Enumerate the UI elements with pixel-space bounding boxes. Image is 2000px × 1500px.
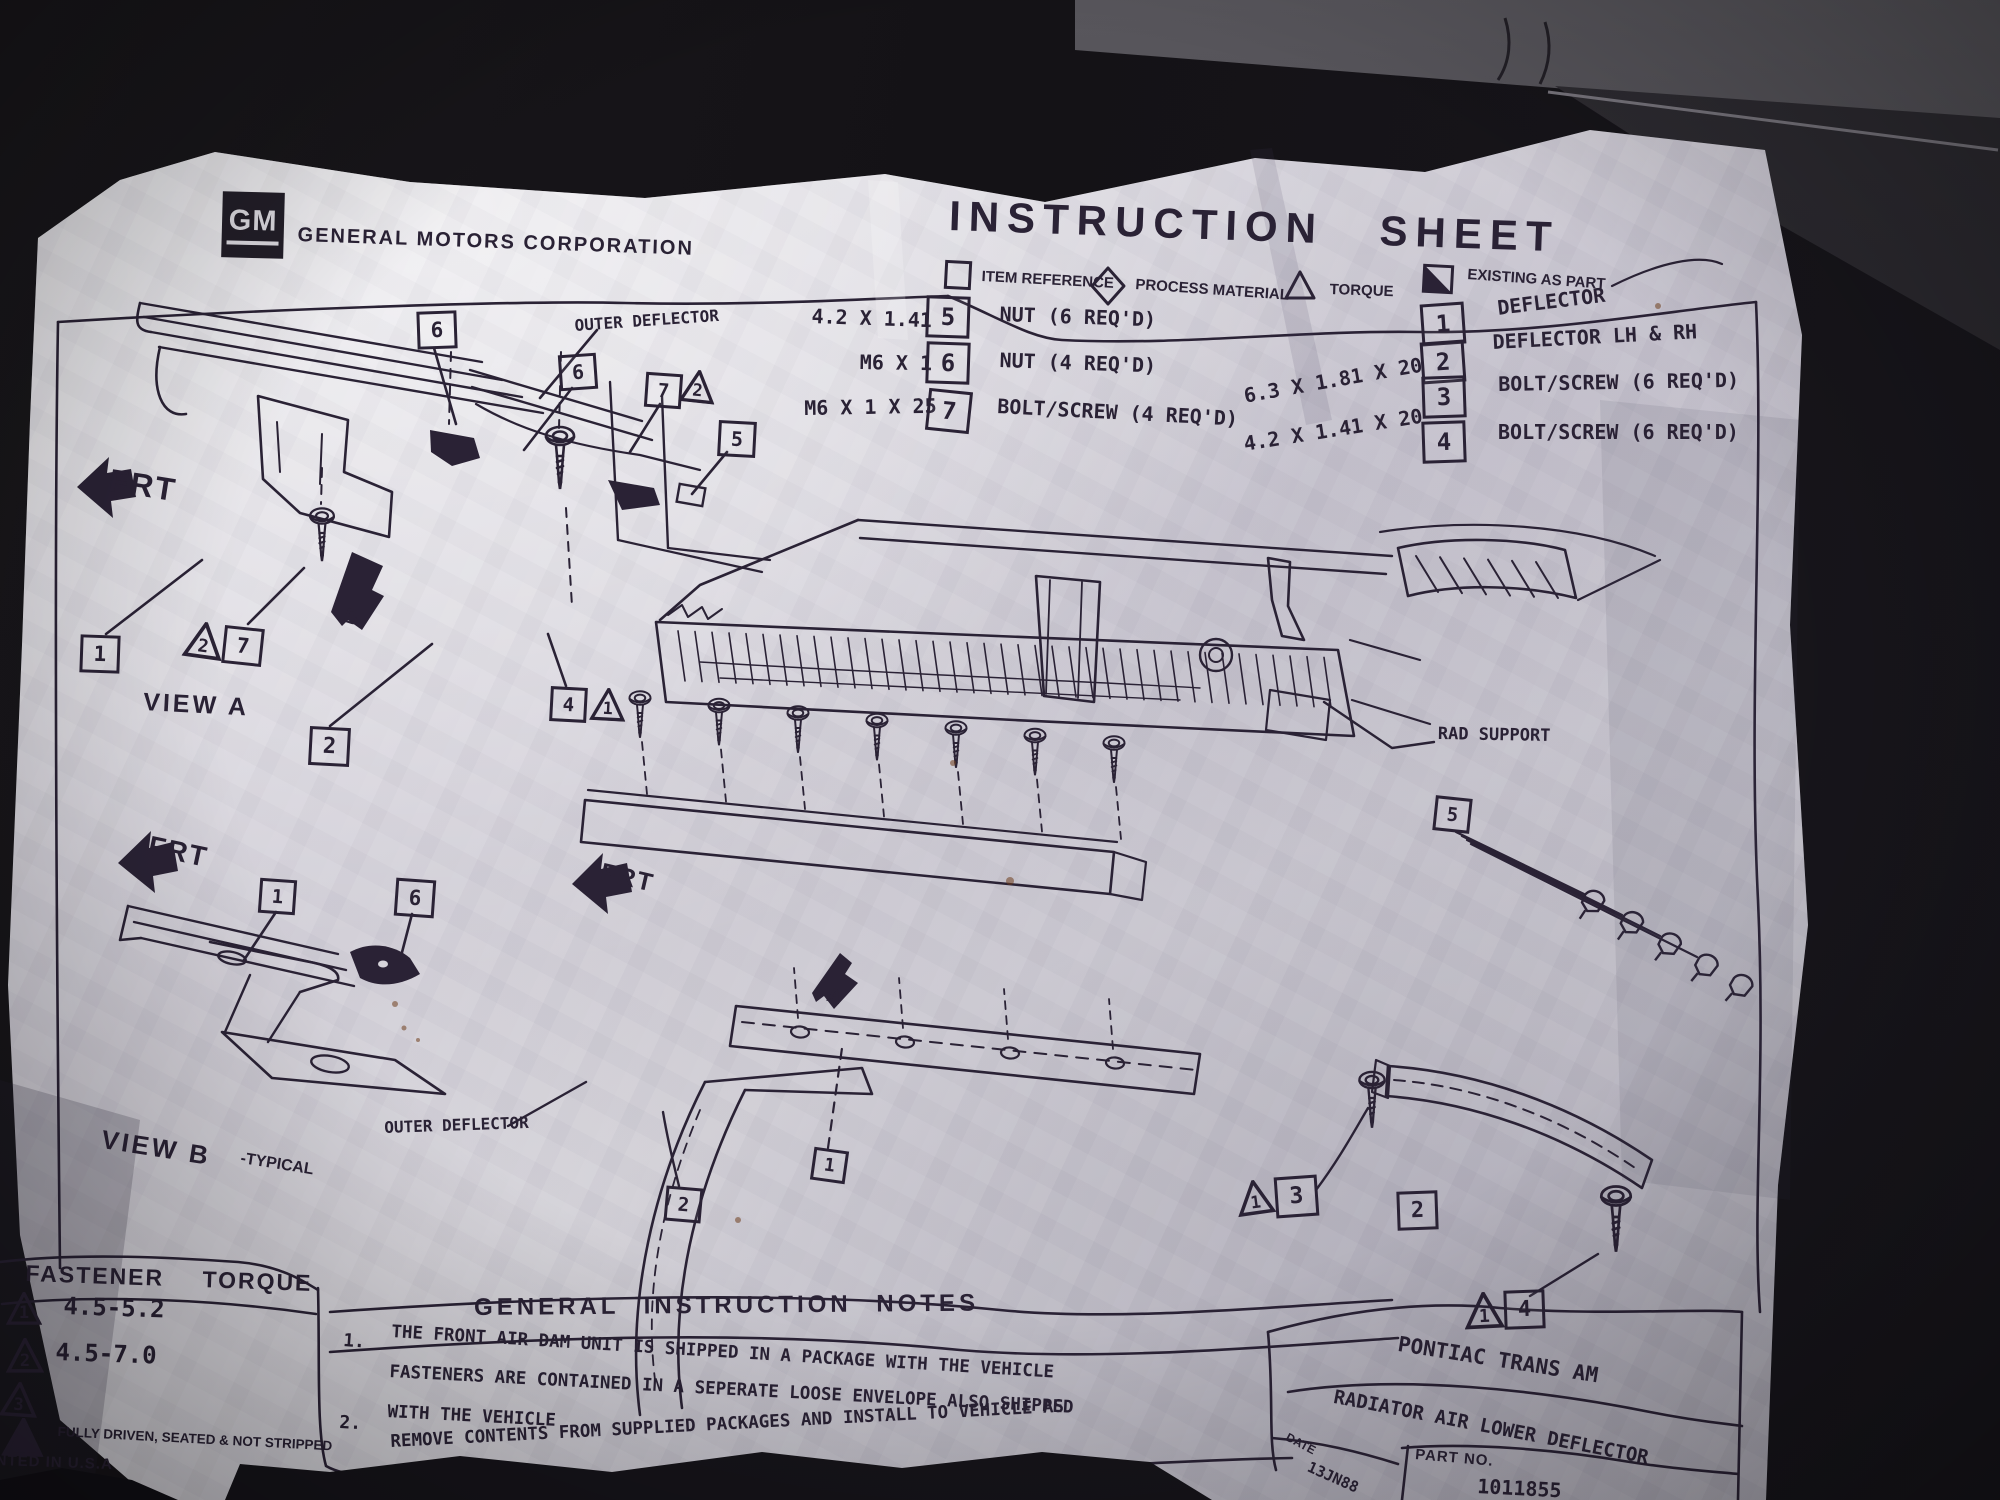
callout-ftf: [1, 1417, 44, 1457]
legend-torque: TORQUE: [1329, 281, 1393, 300]
title-block-part-no-value: 1011855: [1477, 1474, 1562, 1500]
callout-p6: 6: [925, 341, 970, 384]
photo-of-instruction-sheet: GM GENERAL MOTORS CORPORATION INSTRUCTIO…: [0, 0, 2000, 1500]
callout-p4: 4: [1421, 420, 1466, 463]
part-size: M6 X 1: [860, 350, 933, 375]
part-size: 4.2 X 1.41: [811, 304, 932, 332]
gm-logo: GM: [221, 191, 285, 259]
rad-support-label: RAD SUPPORT: [1438, 724, 1551, 746]
note-2-number: 2.: [339, 1412, 362, 1434]
callout-vb6: 6: [394, 878, 437, 919]
callout-vat1: 1: [589, 687, 627, 722]
callout-va6a: 6: [416, 310, 457, 349]
callout-m5: 5: [1432, 795, 1472, 834]
callout-va7a: 7: [644, 372, 683, 410]
callout-m3: 3: [1274, 1175, 1320, 1219]
callout-va2: 2: [308, 726, 351, 767]
torque-value-1: 4.5-5.2: [63, 1292, 165, 1324]
callout-va5: 5: [717, 420, 757, 458]
callout-vat2a: 2: [678, 368, 717, 405]
notes-title: GENERAL INSTRUCTION NOTES: [474, 1290, 979, 1322]
callout-m1: 1: [810, 1147, 849, 1185]
part-size: M6 X 1 X 25: [804, 394, 937, 420]
callout-p3: 3: [1421, 375, 1466, 418]
callout-m2b: 2: [1396, 1190, 1438, 1230]
gm-logo-text: GM: [226, 204, 280, 245]
callout-m4: 4: [1503, 1289, 1545, 1329]
callout-va1: 1: [79, 634, 120, 673]
callout-m2a: 2: [664, 1185, 704, 1223]
callout-p7: 7: [925, 388, 973, 434]
callout-ft1: 1: [6, 1292, 42, 1325]
callout-va6b: 6: [558, 353, 598, 392]
view-a-caption: VIEW A: [142, 688, 249, 723]
sheet-ink-layer: GM GENERAL MOTORS CORPORATION INSTRUCTIO…: [0, 0, 2000, 1500]
note-1-number: 1.: [343, 1330, 366, 1352]
callout-ft3: 3: [0, 1381, 39, 1419]
callout-vb1: 1: [258, 878, 297, 916]
callout-ft2: 2: [6, 1338, 44, 1373]
part-desc: BOLT/SCREW (6 REQ'D): [1498, 420, 1739, 444]
callout-mt1b: 1: [1463, 1291, 1505, 1330]
torque-value-2: 4.5-7.0: [55, 1338, 157, 1370]
callout-va4: 4: [549, 686, 588, 723]
callout-vat2b: 2: [182, 619, 227, 661]
callout-p5: 5: [925, 295, 970, 338]
callout-va7b: 7: [221, 625, 265, 667]
part-desc: BOLT/SCREW (6 REQ'D): [1498, 368, 1739, 396]
callout-mt1a: 1: [1234, 1178, 1276, 1218]
